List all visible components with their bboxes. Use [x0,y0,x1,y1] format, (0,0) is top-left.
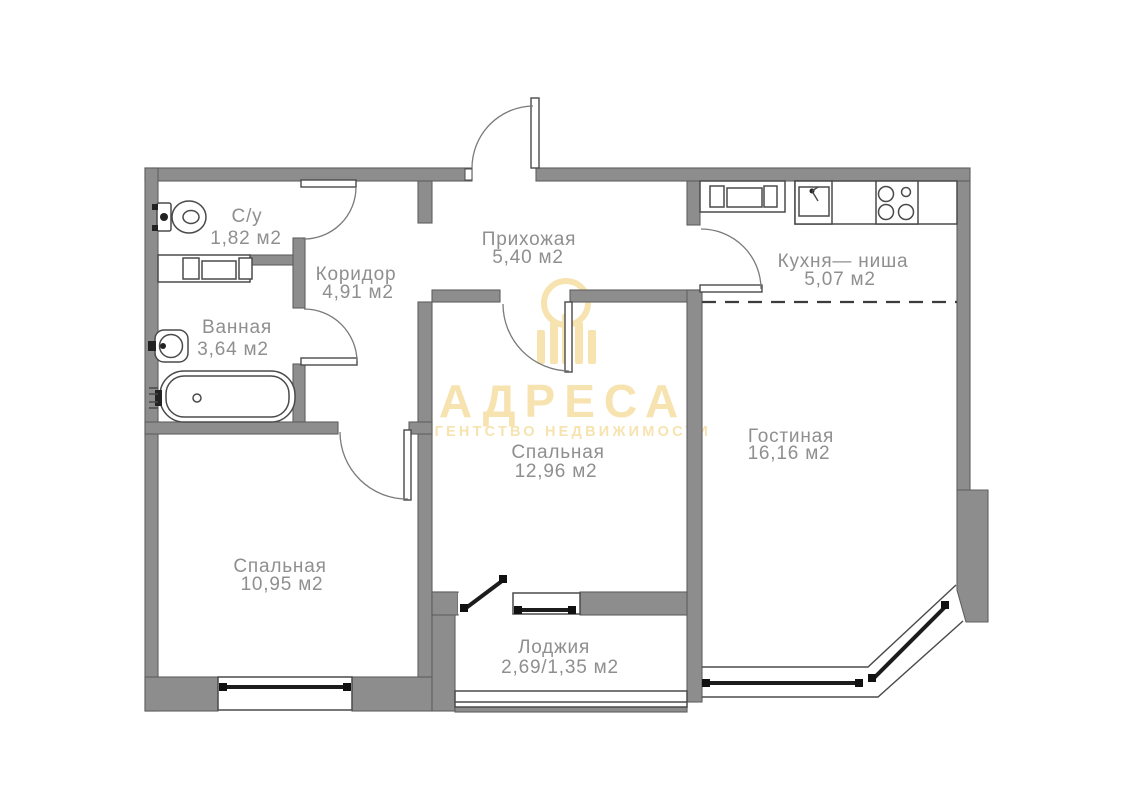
wall-bedroom2-top-b [409,422,432,434]
wall-bath-south [145,422,338,434]
door-leaf [565,302,572,372]
window-cap [343,683,351,691]
window-cap [855,679,863,687]
wall-bottom-left-a [145,677,218,711]
bedroom-2-window [218,677,352,710]
window-cap [219,683,227,691]
room-area-spalnaya-2: 10,95 м2 [241,574,324,595]
room-name-vannaya: Ванная [202,317,272,338]
door-leaf [404,430,411,500]
bathroom-door [301,309,357,365]
entrance-door [465,98,539,180]
room-area-koridor: 4,91 м2 [322,282,394,303]
room-name-su: С/у [232,206,263,227]
bedroom-1-window [513,593,580,614]
bay-outer-line [702,621,963,697]
washer-cabinet-icon [158,255,252,282]
watermark-brand: АДРЕСА [439,375,687,427]
wall-living-west [687,290,702,702]
cabinet-section [764,186,777,207]
wall-corridor-stub [418,181,432,223]
toilet-icon [152,201,206,233]
cabinet-section [202,261,236,279]
room-name-spalnaya-1: Спальная [511,442,604,463]
room-area-vannaya: 3,64 м2 [197,339,269,360]
window-cap [514,606,522,614]
wall-kitchen-west [687,181,700,225]
living-room-bay-window [702,585,963,697]
door-leaf [700,285,762,292]
wall-wc-east-a [293,238,305,308]
room-area-gostinaya: 16,16 м2 [748,443,831,464]
kitchen-cabinet-icon [700,181,785,212]
bathtub-inner [166,376,289,417]
door-swing-arc [303,187,356,239]
room-area-prihozhaya: 5,40 м2 [492,247,564,268]
logo-column [550,322,558,364]
door-leaf [301,358,357,365]
wall-bedroom1-south-a [432,592,458,615]
cabinet-section [183,258,199,279]
window-cap [568,606,576,614]
cabinet-section [239,258,252,279]
toilet-bowl-inner [183,211,199,224]
bedroom-2-door [340,430,411,500]
wall-hall-south-a [432,290,500,302]
door-swing-arc [472,106,533,168]
room-area-su: 1,82 м2 [210,228,282,249]
door-swing-arc [503,304,569,371]
bathtub-drain [193,394,201,402]
room-area-lodzhiya: 2,69/1,35 м2 [501,657,619,678]
balcony-door [458,575,513,614]
logo-column [588,330,596,364]
room-area-kuhnya: 5,07 м2 [804,269,876,290]
room-area-spalnaya-1: 12,96 м2 [515,461,598,482]
door-leaf [301,180,356,187]
wc-door [301,180,356,239]
sink-drain [160,343,166,349]
door-swing-arc [701,229,761,289]
stove-burner [879,187,894,202]
bathtub-tap [155,390,162,406]
window-cap [868,674,876,682]
wall-wc-bath-divider [248,255,293,265]
wall-top-left [145,168,472,181]
wall-bottom-left-b [352,677,432,711]
cabinet-section [710,186,724,207]
wall-top-right [536,168,970,181]
toilet-valve [152,225,158,231]
toilet-flush [160,213,168,221]
door-swing-arc [340,432,408,499]
room-name-lodzhiya: Лоджия [518,637,590,658]
floor-plan-page: АДРЕСА АГЕНТСТВО НЕДВИЖИМОСТИ [0,0,1132,800]
stove-burner [899,205,914,220]
wall-bedroom-divider [418,302,432,677]
sink-tap [148,341,156,351]
door-jamb [465,169,472,180]
loggia-glazing-band [455,691,687,707]
wall-left [145,168,158,711]
wall-right [957,181,970,490]
wall-hall-south-b [570,290,700,302]
stove-burner [902,188,911,197]
wall-right-pier [957,490,988,622]
logo-column [537,330,545,364]
kitchen-counter-icon [795,181,957,224]
logo-column [575,322,583,364]
window-frame [218,677,352,710]
door-leaf [531,98,539,168]
floor-plan-drawing: АДРЕСА АГЕНТСТВО НЕДВИЖИМОСТИ [0,0,1132,800]
wall-bedroom1-south-b [580,592,687,615]
door-cap [499,575,507,583]
cabinet-section [727,188,762,207]
kitchen-door [700,229,762,292]
door-swing-arc [304,309,357,361]
window-cap [941,601,949,609]
toilet-valve [152,204,158,210]
window-cap [702,679,710,687]
bathtub-icon [149,371,295,422]
stove-burner [879,205,894,220]
bay-glazing-diagonal [874,607,945,678]
door-cap [460,604,468,612]
bay-inner-line [702,585,956,667]
loggia-glazing [455,691,687,707]
watermark-subtitle: АГЕНТСТВО НЕДВИЖИМОСТИ [421,424,711,440]
